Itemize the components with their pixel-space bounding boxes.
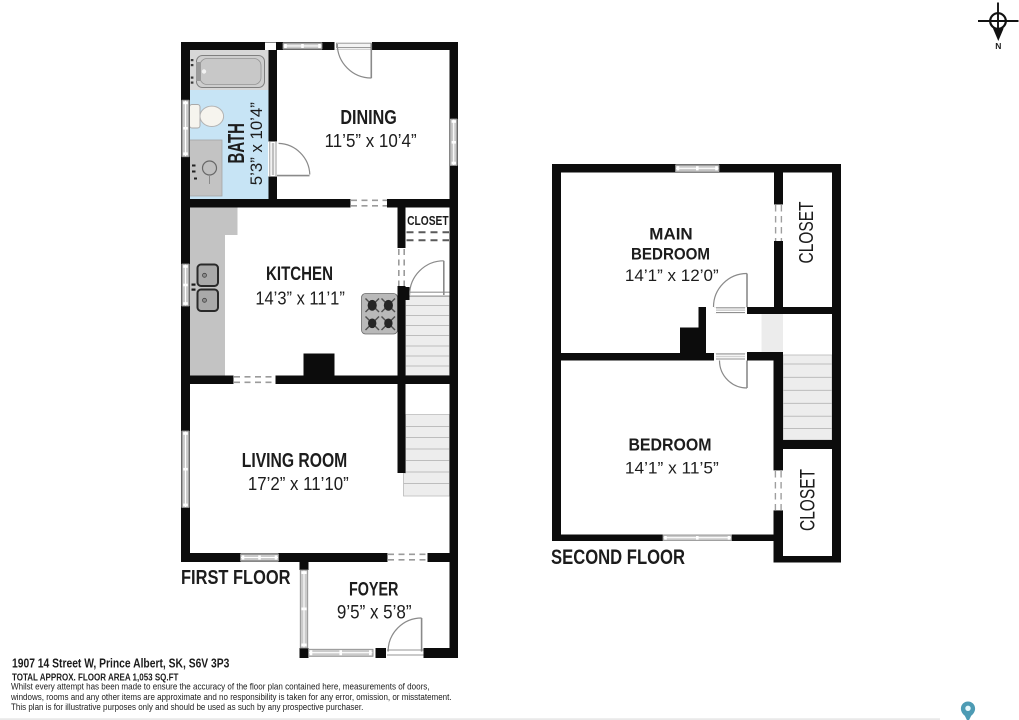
svg-text:Whilst every attempt has been: Whilst every attempt has been made to en… xyxy=(11,682,430,692)
svg-text:1907 14 Street W, Prince Alber: 1907 14 Street W, Prince Albert, SK, S6V… xyxy=(12,656,229,671)
svg-text:14’3” x 11’1”: 14’3” x 11’1” xyxy=(255,288,345,308)
svg-text:FOYER: FOYER xyxy=(349,578,399,600)
svg-text:CLOSET: CLOSET xyxy=(407,213,449,228)
svg-text:BEDROOM: BEDROOM xyxy=(628,434,711,454)
svg-text:DINING: DINING xyxy=(340,107,397,129)
svg-text:14’1” x 11’5”: 14’1” x 11’5” xyxy=(625,458,719,477)
svg-text:14’1” x 12’0”: 14’1” x 12’0” xyxy=(625,267,719,285)
svg-text:11’5” x 10’4”: 11’5” x 10’4” xyxy=(325,131,417,151)
svg-text:LIVING ROOM: LIVING ROOM xyxy=(242,450,348,472)
svg-text:CLOSET: CLOSET xyxy=(797,469,820,531)
svg-text:CLOSET: CLOSET xyxy=(796,202,818,264)
svg-text:BEDROOM: BEDROOM xyxy=(631,246,710,264)
svg-text:MAIN: MAIN xyxy=(649,225,692,243)
svg-text:N: N xyxy=(995,41,1001,51)
svg-text:KITCHEN: KITCHEN xyxy=(266,264,333,285)
svg-text:BATH: BATH xyxy=(223,123,249,164)
svg-text:5’3” x 10’4”: 5’3” x 10’4” xyxy=(248,102,266,185)
svg-text:FIRST FLOOR: FIRST FLOOR xyxy=(181,566,291,589)
svg-text:windows, rooms and any other i: windows, rooms and any other items are a… xyxy=(10,692,452,702)
svg-text:17’2” x 11’10”: 17’2” x 11’10” xyxy=(248,474,349,494)
svg-text:This plan is for illustrative: This plan is for illustrative purposes o… xyxy=(11,702,363,712)
svg-text:9’5” x 5’8”: 9’5” x 5’8” xyxy=(337,601,412,623)
svg-text:SECOND FLOOR: SECOND FLOOR xyxy=(551,545,685,569)
